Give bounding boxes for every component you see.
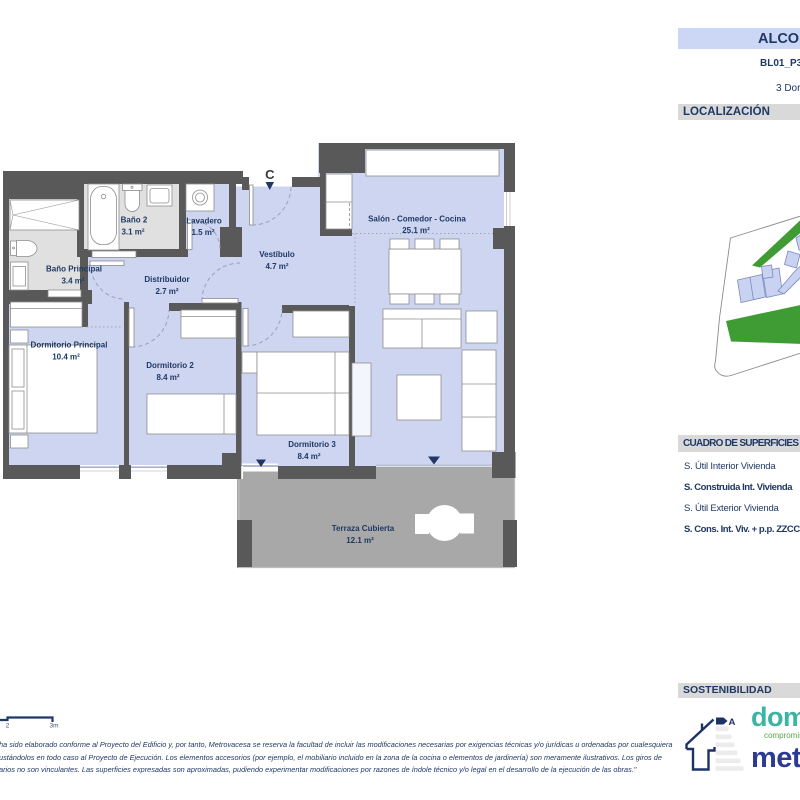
svg-text:Dormitorio Principal: Dormitorio Principal (31, 341, 108, 350)
svg-text:8.4 m²: 8.4 m² (297, 452, 320, 461)
svg-text:Baño Principal: Baño Principal (46, 265, 102, 274)
svg-text:2.7 m²: 2.7 m² (155, 287, 178, 296)
svg-text:Vestíbulo: Vestíbulo (259, 250, 295, 259)
svg-text:Dormitorio 3: Dormitorio 3 (288, 440, 336, 449)
svg-text:10.4 m²: 10.4 m² (52, 353, 80, 362)
svg-text:1.5 m²: 1.5 m² (191, 228, 214, 237)
svg-text:12.1 m²: 12.1 m² (346, 536, 374, 545)
svg-text:Distribuidor: Distribuidor (144, 275, 189, 284)
svg-text:3.4 m²: 3.4 m² (61, 277, 84, 286)
svg-text:C: C (265, 167, 275, 182)
svg-text:4.7 m²: 4.7 m² (265, 262, 288, 271)
svg-text:3.1 m²: 3.1 m² (121, 228, 144, 237)
svg-text:A: A (729, 717, 736, 728)
svg-text:Terraza Cubierta: Terraza Cubierta (332, 524, 395, 533)
svg-text:Baño 2: Baño 2 (121, 216, 148, 225)
svg-text:3m: 3m (49, 723, 58, 730)
svg-text:2: 2 (6, 723, 10, 730)
svg-text:25.1 m²: 25.1 m² (402, 226, 430, 235)
svg-text:Salón - Comedor - Cocina: Salón - Comedor - Cocina (368, 215, 466, 224)
svg-text:Lavadero: Lavadero (186, 217, 222, 226)
svg-text:Dormitorio 2: Dormitorio 2 (146, 361, 194, 370)
svg-text:8.4 m²: 8.4 m² (156, 373, 179, 382)
